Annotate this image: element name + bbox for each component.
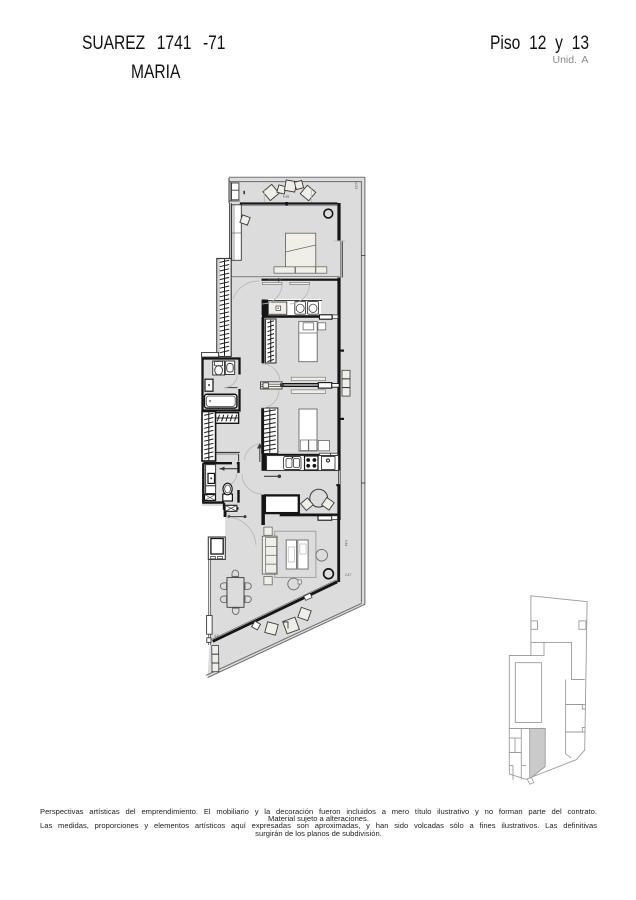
svg-text:4.2: 4.2 [214,634,219,638]
svg-text:1.61: 1.61 [344,540,348,546]
svg-text:14.03: 14.03 [354,181,358,189]
svg-text:9.99: 9.99 [283,195,289,199]
svg-text:2.47: 2.47 [345,573,351,577]
